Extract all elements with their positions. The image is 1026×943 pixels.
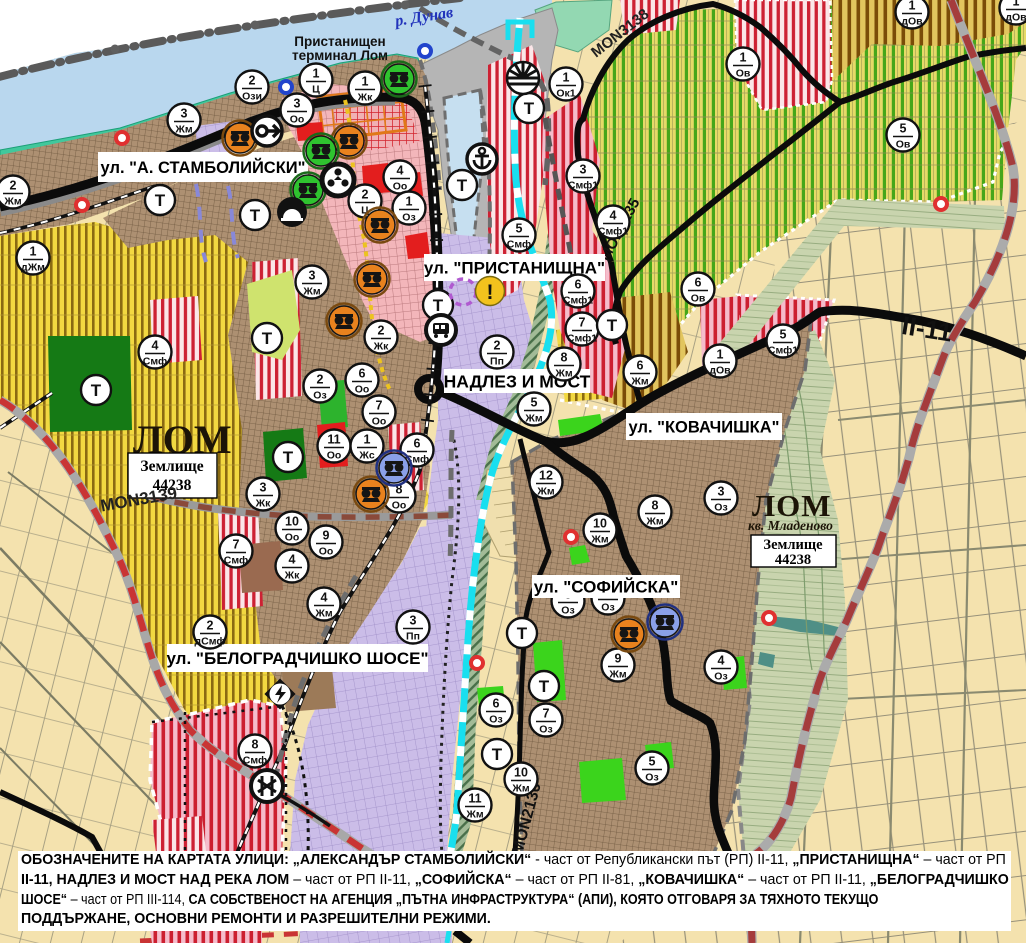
- svg-text:1: 1: [362, 75, 369, 89]
- svg-text:Смф: Смф: [243, 755, 267, 767]
- svg-text:Жк: Жк: [284, 570, 300, 582]
- svg-text:Оо: Оо: [285, 532, 300, 544]
- svg-text:6: 6: [575, 278, 582, 292]
- svg-text:Т: Т: [524, 99, 535, 118]
- svg-text:Жм: Жм: [524, 413, 542, 425]
- svg-text:Оз: Оз: [601, 602, 614, 614]
- svg-text:3: 3: [309, 269, 316, 283]
- svg-text:дОв: дОв: [709, 365, 731, 377]
- svg-text:Ов: Ов: [896, 139, 911, 151]
- svg-text:2: 2: [249, 74, 256, 88]
- svg-text:12: 12: [539, 469, 553, 483]
- svg-text:Жк: Жк: [357, 92, 373, 104]
- svg-text:7: 7: [579, 316, 586, 330]
- svg-text:1: 1: [563, 71, 570, 85]
- svg-text:2: 2: [494, 339, 501, 353]
- svg-text:Оз: Оз: [489, 714, 502, 726]
- svg-text:Т: Т: [91, 381, 102, 400]
- svg-text:Жм: Жм: [554, 368, 572, 380]
- svg-text:1: 1: [717, 348, 724, 362]
- svg-text:Жс: Жс: [358, 450, 374, 462]
- svg-text:Оо: Оо: [393, 181, 408, 193]
- svg-text:6: 6: [414, 437, 421, 451]
- svg-text:5: 5: [780, 328, 787, 342]
- svg-text:Оо: Оо: [355, 384, 370, 396]
- svg-text:Смф1: Смф1: [563, 295, 593, 307]
- svg-text:3: 3: [260, 481, 267, 495]
- svg-text:1: 1: [740, 51, 747, 65]
- svg-text:1: 1: [909, 0, 916, 13]
- svg-text:7: 7: [376, 399, 383, 413]
- svg-text:Пп: Пп: [490, 356, 504, 368]
- svg-text:11: 11: [327, 433, 340, 447]
- svg-text:Оз: Оз: [539, 724, 552, 736]
- svg-text:1: 1: [30, 245, 37, 259]
- svg-text:Жм: Жм: [536, 486, 554, 498]
- svg-text:Смф: Смф: [224, 555, 248, 567]
- svg-text:дОв: дОв: [1005, 12, 1026, 24]
- svg-text:5: 5: [900, 122, 907, 136]
- svg-text:Оо: Оо: [372, 416, 387, 428]
- svg-text:11: 11: [468, 792, 481, 806]
- svg-text:Смф: Смф: [143, 356, 167, 368]
- svg-text:44238: 44238: [775, 552, 811, 568]
- svg-text:Смф1: Смф1: [568, 180, 598, 192]
- svg-text:Ов: Ов: [691, 293, 706, 305]
- svg-text:Оз: Оз: [561, 605, 574, 617]
- svg-text:Оз: Оз: [645, 772, 658, 784]
- svg-text:1: 1: [406, 195, 413, 209]
- svg-text:терминал Лом: терминал Лом: [292, 48, 388, 63]
- svg-text:дСмф: дСмф: [194, 636, 225, 648]
- svg-text:1: 1: [313, 67, 320, 81]
- svg-text:Оз: Оз: [714, 671, 727, 683]
- svg-text:Т: Т: [492, 745, 503, 764]
- svg-text:Жм: Жм: [630, 376, 648, 388]
- svg-text:4: 4: [610, 209, 617, 223]
- svg-text:Жм: Жм: [3, 196, 21, 208]
- svg-text:Оо: Оо: [290, 114, 305, 126]
- svg-text:Жм: Жм: [608, 669, 626, 681]
- svg-text:Смф1: Смф1: [567, 333, 597, 345]
- svg-text:Смф1: Смф1: [768, 345, 798, 357]
- svg-text:1: 1: [1013, 0, 1020, 9]
- svg-text:4: 4: [718, 654, 725, 668]
- svg-text:4: 4: [321, 591, 328, 605]
- svg-text:8: 8: [561, 351, 568, 365]
- svg-text:3: 3: [294, 97, 301, 111]
- svg-text:2: 2: [378, 324, 385, 338]
- svg-text:Т: Т: [539, 677, 550, 696]
- svg-text:Оо: Оо: [327, 450, 342, 462]
- svg-text:Оо: Оо: [319, 546, 334, 558]
- svg-text:7: 7: [233, 538, 240, 552]
- svg-text:Т: Т: [262, 329, 273, 348]
- svg-text:8: 8: [652, 499, 659, 513]
- svg-text:6: 6: [695, 276, 702, 290]
- svg-text:ул. "А. СТАМБОЛИЙСКИ": ул. "А. СТАМБОЛИЙСКИ": [101, 158, 306, 177]
- svg-text:6: 6: [493, 697, 500, 711]
- svg-text:!: !: [487, 281, 494, 304]
- svg-text:Т: Т: [283, 448, 294, 467]
- svg-text:3: 3: [718, 485, 725, 499]
- svg-text:ул. "КОВАЧИШКА": ул. "КОВАЧИШКА": [629, 418, 780, 436]
- svg-text:Ози: Ози: [242, 91, 262, 103]
- svg-text:2: 2: [362, 188, 369, 202]
- svg-text:5: 5: [531, 396, 538, 410]
- svg-text:Жм: Жм: [590, 534, 608, 546]
- svg-text:Жм: Жм: [302, 286, 320, 298]
- svg-text:кв. Младеново: кв. Младеново: [748, 518, 833, 533]
- svg-text:ул. "СОФИЙСКА": ул. "СОФИЙСКА": [534, 578, 679, 597]
- svg-text:Оз: Оз: [313, 390, 326, 402]
- svg-text:Смф1: Смф1: [598, 226, 628, 238]
- svg-text:Т: Т: [517, 624, 528, 643]
- svg-text:9: 9: [323, 529, 330, 543]
- svg-text:5: 5: [649, 755, 656, 769]
- svg-text:10: 10: [514, 766, 528, 780]
- svg-text:3: 3: [580, 163, 587, 177]
- svg-text:Жм: Жм: [465, 809, 483, 821]
- svg-text:Смф: Смф: [507, 239, 531, 251]
- svg-text:4: 4: [289, 553, 296, 567]
- svg-text:Жм: Жм: [645, 516, 663, 528]
- svg-text:6: 6: [637, 359, 644, 373]
- svg-text:ул. "БЕЛОГРАДЧИШКО ШОСЕ": ул. "БЕЛОГРАДЧИШКО ШОСЕ": [166, 649, 428, 668]
- svg-text:9: 9: [615, 652, 622, 666]
- svg-text:Жк: Жк: [373, 341, 389, 353]
- svg-text:Т: Т: [250, 206, 261, 225]
- svg-text:Т: Т: [457, 176, 468, 195]
- svg-text:Т: Т: [155, 191, 166, 210]
- svg-text:8: 8: [252, 738, 259, 752]
- svg-text:Жм: Жм: [314, 608, 332, 620]
- svg-text:Землище: Землище: [140, 458, 203, 475]
- svg-text:Ок1: Ок1: [556, 88, 575, 100]
- svg-text:Оо: Оо: [392, 500, 407, 512]
- svg-text:Пристанищен: Пристанищен: [294, 34, 385, 49]
- svg-text:7: 7: [543, 707, 550, 721]
- svg-text:10: 10: [593, 517, 607, 531]
- svg-text:2: 2: [10, 179, 17, 193]
- svg-text:дОв: дОв: [901, 16, 923, 28]
- svg-text:Жм: Жм: [174, 124, 192, 136]
- svg-text:2: 2: [317, 373, 324, 387]
- svg-text:Жк: Жк: [255, 498, 271, 510]
- svg-text:Ов: Ов: [736, 68, 751, 80]
- svg-text:1: 1: [364, 433, 371, 447]
- svg-text:10: 10: [285, 515, 299, 529]
- svg-text:Пп: Пп: [406, 631, 420, 643]
- svg-text:3: 3: [181, 107, 188, 121]
- svg-text:дЖм: дЖм: [21, 262, 45, 274]
- svg-text:6: 6: [359, 367, 366, 381]
- svg-text:2: 2: [207, 619, 214, 633]
- svg-text:4: 4: [397, 164, 404, 178]
- svg-text:Ц: Ц: [312, 84, 320, 96]
- svg-text:Жм: Жм: [511, 783, 529, 795]
- svg-text:3: 3: [410, 614, 417, 628]
- svg-text:Оз: Оз: [714, 502, 727, 514]
- svg-text:4: 4: [152, 339, 159, 353]
- svg-text:Оз: Оз: [402, 212, 415, 224]
- svg-text:5: 5: [516, 222, 523, 236]
- svg-text:Т: Т: [433, 296, 444, 315]
- svg-text:Т: Т: [607, 316, 618, 335]
- svg-text:Землище: Землище: [763, 537, 823, 553]
